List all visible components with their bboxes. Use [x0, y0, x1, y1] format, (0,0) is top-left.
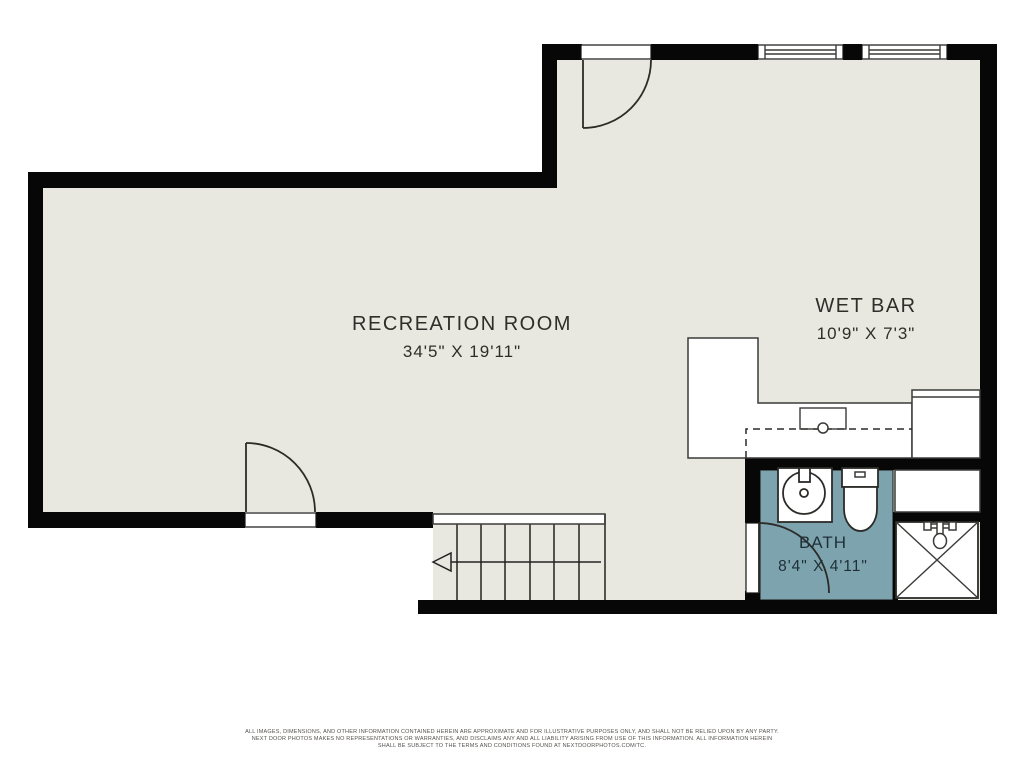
- door-opening-bath: [746, 523, 759, 593]
- room-dimensions: 8'4" X 4'11": [763, 558, 883, 576]
- window-1: [758, 45, 843, 59]
- floorplan-drawing: [0, 0, 1024, 768]
- room-name: RECREATION ROOM: [312, 313, 612, 336]
- bath-niche: [895, 470, 980, 512]
- door-opening-top: [581, 45, 651, 59]
- wall-left: [28, 172, 43, 528]
- wall-recroom-top: [28, 172, 557, 188]
- wall-recroom-bottom-right: [316, 512, 433, 528]
- wall-shower-top: [893, 512, 980, 522]
- wall-right: [980, 44, 997, 614]
- window-2: [862, 45, 947, 59]
- recreation-room-label: RECREATION ROOM 34'5" X 19'11": [312, 313, 612, 362]
- room-name: BATH: [763, 533, 883, 553]
- wall-bath-left-upper: [745, 470, 760, 523]
- room-dimensions: 34'5" X 19'11": [312, 342, 612, 362]
- wet-bar-counter-return: [912, 390, 980, 458]
- disclaimer-line-2: NEXT DOOR PHOTOS MAKES NO REPRESENTATION…: [0, 736, 1024, 743]
- toilet-flush-button: [855, 472, 865, 477]
- wall-bottom: [418, 600, 997, 614]
- disclaimer-line-1: ALL IMAGES, DIMENSIONS, AND OTHER INFORM…: [0, 729, 1024, 736]
- room-dimensions: 10'9" X 7'3": [766, 324, 966, 344]
- shower: [896, 522, 978, 598]
- wall-recroom-bottom-left: [28, 512, 245, 528]
- wall-connector: [542, 44, 557, 188]
- door-opening-recroom: [245, 513, 316, 527]
- bath-label: BATH 8'4" X 4'11": [763, 533, 883, 576]
- disclaimer-line-3: SHALL BE SUBJECT TO THE TERMS AND CONDIT…: [0, 743, 1024, 750]
- sink-drain: [800, 489, 808, 497]
- wall-top-seg1: [542, 44, 582, 60]
- room-name: WET BAR: [766, 295, 966, 318]
- wall-top-seg2: [651, 44, 758, 60]
- floorplan-page: RECREATION ROOM 34'5" X 19'11" WET BAR 1…: [0, 0, 1024, 768]
- bar-sink-faucet: [818, 423, 828, 433]
- wall-top-seg3: [843, 44, 862, 60]
- disclaimer-footer: ALL IMAGES, DIMENSIONS, AND OTHER INFORM…: [0, 729, 1024, 750]
- toilet: [842, 468, 878, 531]
- vanity-sink: [778, 468, 832, 522]
- stair-landing-edge: [433, 514, 605, 524]
- wet-bar-label: WET BAR 10'9" X 7'3": [766, 295, 966, 344]
- toilet-bowl: [844, 487, 877, 531]
